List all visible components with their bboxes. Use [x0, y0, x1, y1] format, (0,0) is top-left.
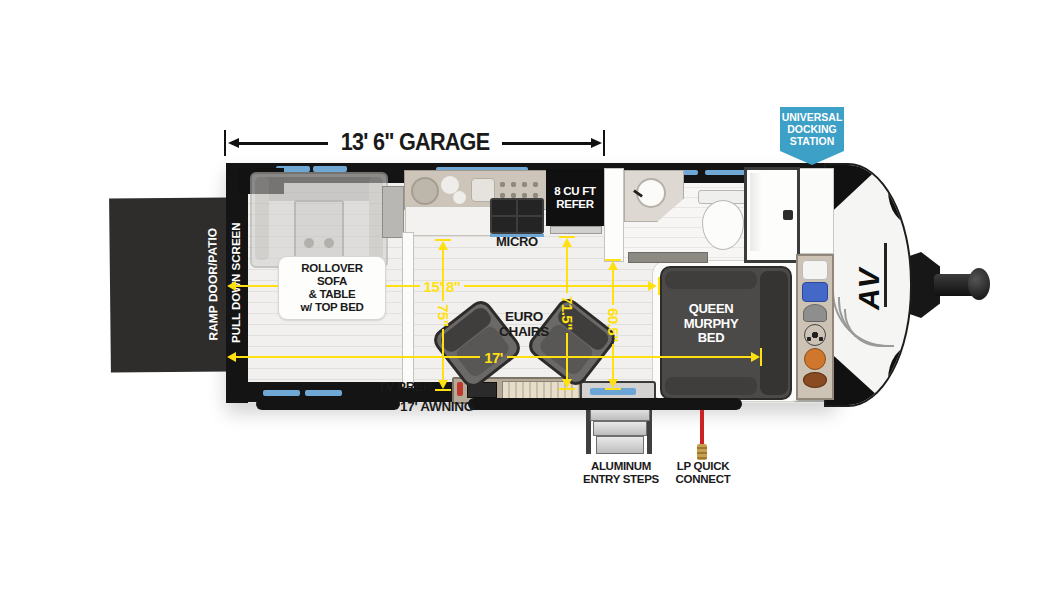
kitchen-sink-icon — [411, 177, 439, 205]
sofa-back-cushion — [256, 177, 382, 201]
wardrobe — [798, 168, 834, 254]
garage-dim-tick-right — [603, 130, 605, 156]
awning-label: 17' AWNING — [400, 399, 468, 414]
fire-extinguisher-icon — [457, 382, 463, 396]
av-logo-tagline — [884, 243, 887, 307]
sofa-armrest-left — [255, 177, 269, 260]
dim-awning-length: 17' — [227, 349, 760, 365]
garage-dim-label: 13' 6" GARAGE — [341, 130, 490, 156]
rollover-sofa-label: ROLLOVER SOFA & TABLE w/ TOP BED — [286, 262, 378, 314]
euro-chairs-label: EURO CHAIRS — [494, 309, 554, 339]
docking-station-label: UNIVERSAL DOCKING STATION — [782, 112, 843, 147]
football-icon — [803, 372, 827, 388]
cup-icon — [304, 238, 314, 248]
lp-connect-label: LP QUICK CONNECT — [672, 460, 734, 486]
storage-cubby — [796, 254, 834, 400]
front-cap: AV — [824, 163, 912, 407]
dim-bed-width: 60.5" — [605, 261, 621, 388]
garage-door-window-2 — [305, 390, 342, 396]
murphy-bed-label: QUEEN MURPHY BED — [670, 302, 752, 346]
stove — [490, 198, 544, 234]
garage-dim: 13' 6" GARAGE — [228, 131, 602, 155]
dim-tick-2 — [760, 348, 762, 366]
kitchen-lower-counter — [405, 206, 491, 236]
dim-living-width: 71.5" — [559, 238, 575, 388]
rollover-sofa — [250, 172, 388, 268]
ramp-door: RAMP DOOR/PATIO — [109, 197, 229, 372]
sofa-armrest-right — [369, 177, 383, 260]
step-tread-2 — [593, 421, 647, 436]
sofa-backrest — [760, 271, 788, 395]
cap-icon — [803, 304, 827, 322]
cap-accent-right-2 — [888, 345, 912, 407]
refrigerator: 8 CU FT REFER — [546, 169, 604, 226]
hitch-coupler — [968, 268, 990, 300]
jersey-white-icon — [802, 260, 828, 280]
dim-garage-width: 75" — [435, 241, 451, 389]
docking-station-badge: UNIVERSAL DOCKING STATION — [780, 107, 844, 165]
garage-dim-arrow-left — [228, 138, 239, 148]
basketball-icon — [804, 348, 826, 370]
bath-window-2 — [705, 170, 749, 175]
dim-bed-width-label: 60.5" — [605, 308, 622, 342]
dim-garage-width-label: 75" — [435, 304, 452, 326]
garage-cabinet — [382, 186, 404, 238]
soccer-ball-icon — [804, 324, 826, 346]
dim-tick-4 — [435, 389, 451, 391]
ramp-door-label: RAMP DOOR/PATIO — [206, 197, 221, 371]
dim-awning-length-label: 17' — [484, 349, 503, 366]
tv-prep-label: TV PREP — [378, 380, 430, 395]
murphy-bed-sofa: QUEEN MURPHY BED — [660, 266, 792, 400]
bathroom-ledge — [628, 252, 708, 263]
dim-tick-6 — [559, 388, 575, 390]
awning-bar — [256, 398, 400, 410]
shower-head-icon — [783, 210, 793, 220]
dim-tick-8 — [605, 388, 621, 390]
cap-accent-right — [888, 163, 912, 225]
refer-label: 8 CU FT REFER — [554, 185, 595, 211]
plate-icon-2 — [453, 191, 466, 204]
cup-icon-2 — [324, 238, 334, 248]
refer-base — [550, 226, 602, 234]
entry-steps — [586, 404, 652, 458]
rollover-sofa-plaque: ROLLOVER SOFA & TABLE w/ TOP BED — [278, 256, 386, 320]
garage-dim-arrow-right — [591, 138, 602, 148]
step-tread-3 — [596, 436, 644, 454]
bathroom-wall — [604, 168, 624, 262]
sofa-arm-top — [665, 271, 757, 289]
sofa-table — [294, 200, 344, 258]
dim-tick — [658, 277, 660, 295]
micro-label: MICRO — [492, 235, 542, 250]
dim-living-width-label: 71.5" — [559, 296, 576, 330]
av-logo: AV — [852, 213, 886, 363]
shower-glass — [750, 173, 762, 251]
lp-fitting — [697, 444, 707, 460]
lp-hose — [700, 406, 704, 444]
sofa-arm-bottom — [665, 377, 757, 395]
floorplan-canvas: RAMP DOOR/PATIO PULL DOWN SCREEN AV UNIV… — [0, 0, 1059, 597]
garage-door-window — [263, 390, 300, 396]
awning-bar-2 — [468, 398, 742, 410]
shower — [744, 167, 800, 263]
garage-dim-tick-left — [224, 130, 226, 156]
entry-steps-label: ALUMINUM ENTRY STEPS — [582, 460, 660, 486]
jersey-blue-icon — [802, 282, 828, 302]
